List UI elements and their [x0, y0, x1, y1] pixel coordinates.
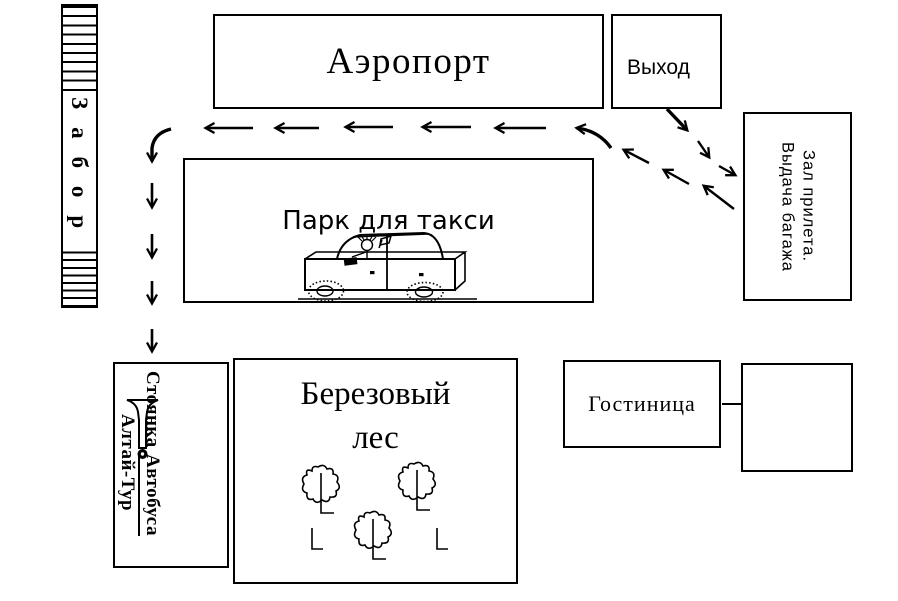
arrival-hall-line2: Выдача багажа: [776, 114, 797, 299]
bus-stop-line2-text: Алтай-Тур: [113, 414, 138, 511]
forest-line2: лес: [235, 417, 516, 461]
route-horizontal-arrows: [206, 127, 611, 148]
route-arrival-to-airport-arrows: [624, 150, 734, 209]
forest-line1: Березовый: [235, 373, 516, 417]
airport-map-diagram: Забор Аэропорт Выход Зал прилета. Выдача…: [0, 0, 898, 601]
hotel-box: Гостиница: [563, 360, 721, 448]
route-down-arrows: [152, 129, 171, 351]
hotel-annex-box: [741, 363, 853, 472]
forest-label: Березовый лес: [235, 360, 516, 460]
airport-label: Аэропорт: [326, 40, 490, 83]
forest-box: Березовый лес: [233, 358, 518, 584]
taxi-park-label: Парк для такси: [185, 206, 592, 236]
bus-stop-word1: Стоянка: [142, 371, 163, 448]
taxi-park-box: Парк для такси: [183, 158, 594, 303]
fence: Забор: [61, 4, 98, 308]
fence-hatch-top-icon: [63, 6, 96, 97]
fence-label: Забор: [68, 97, 91, 246]
arrival-hall-line1: Зал прилета.: [798, 114, 819, 299]
arrival-hall-box: Зал прилета. Выдача багажа: [743, 112, 852, 301]
bus-stop-label: СтоянкаАвтобуса Алтай-Тур: [115, 368, 165, 558]
bus-stop-box: СтоянкаАвтобуса Алтай-Тур: [113, 362, 229, 568]
arrival-hall-label: Зал прилета. Выдача багажа: [776, 114, 818, 299]
fence-label-area: Забор: [63, 97, 96, 246]
hotel-label: Гостиница: [588, 391, 696, 417]
route-exit-to-arrival-arrows: [667, 109, 735, 175]
bus-stop-word2: Автобуса: [138, 454, 163, 536]
exit-label: Выход: [627, 56, 690, 80]
bus-stop-line2: Алтай-Тур: [115, 368, 140, 558]
airport-box: Аэропорт: [213, 14, 604, 109]
fence-hatch-bottom-icon: [63, 246, 96, 306]
bus-stop-line1: СтоянкаАвтобуса: [140, 368, 165, 558]
exit-box: Выход: [611, 14, 722, 109]
